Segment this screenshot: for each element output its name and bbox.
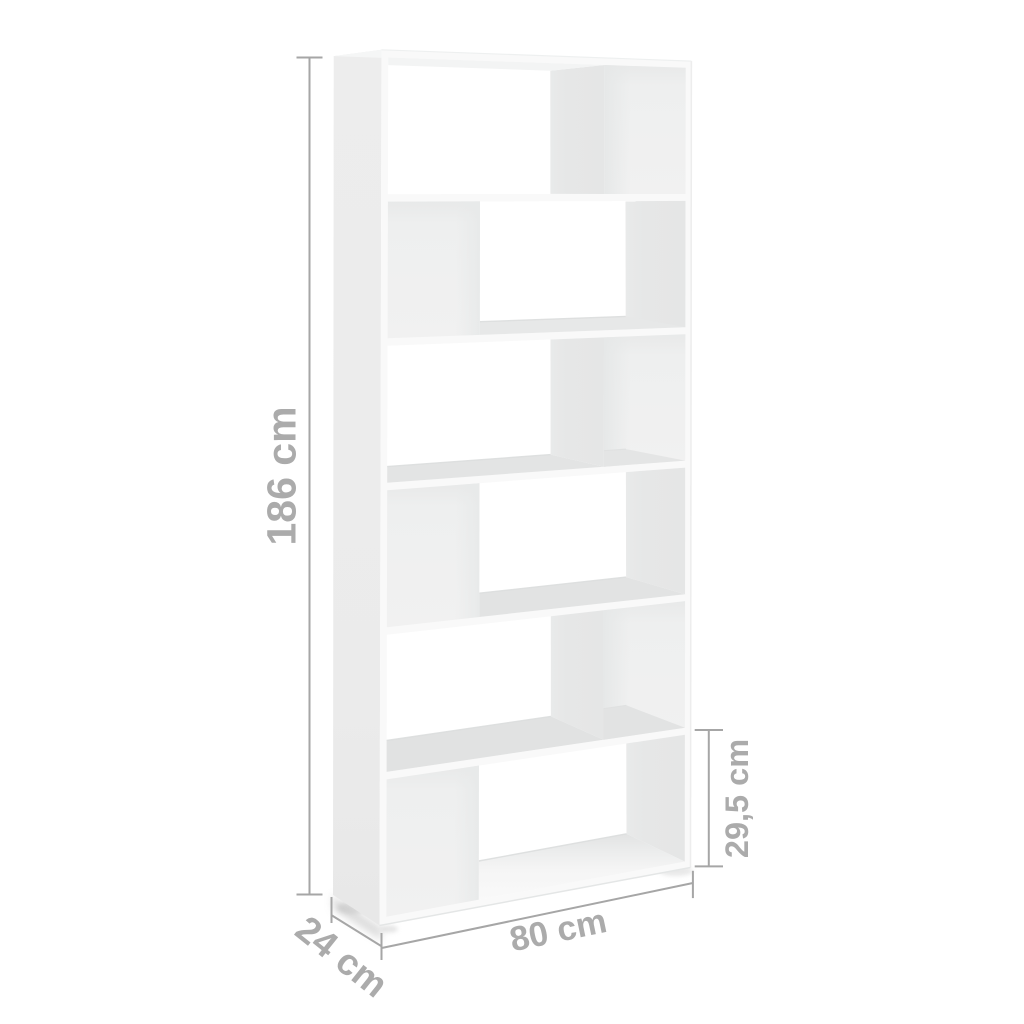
svg-text:29,5 cm: 29,5 cm [719,739,755,858]
svg-text:186 cm: 186 cm [259,406,305,545]
